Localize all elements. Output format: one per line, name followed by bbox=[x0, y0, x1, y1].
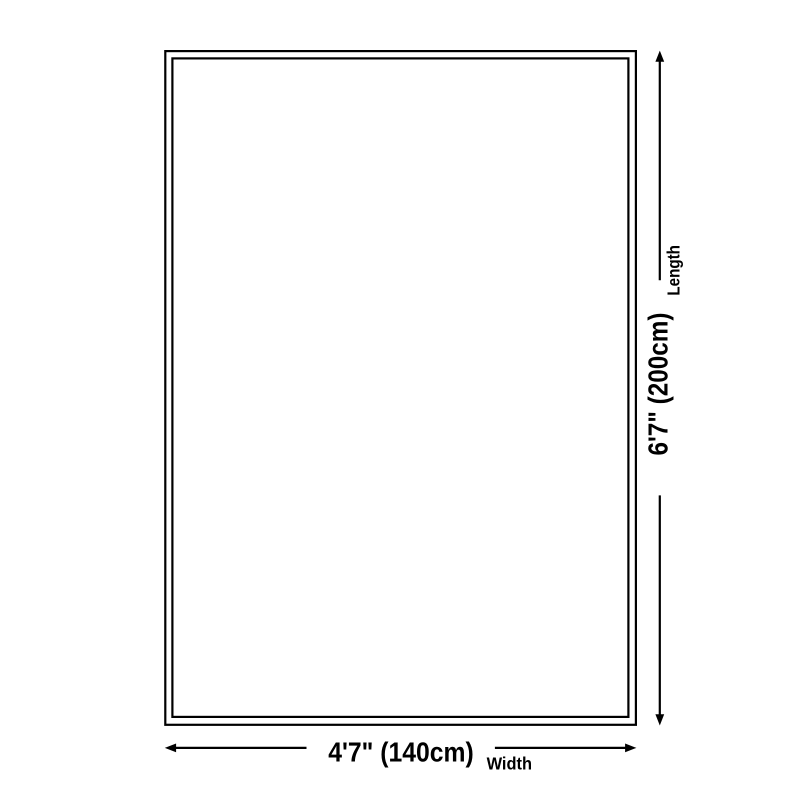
svg-text:Length: Length bbox=[664, 245, 684, 296]
svg-text:6'7" (200cm): 6'7" (200cm) bbox=[642, 313, 673, 456]
svg-text:4'7" (140cm): 4'7" (140cm) bbox=[328, 736, 473, 767]
svg-text:Width: Width bbox=[487, 754, 532, 774]
